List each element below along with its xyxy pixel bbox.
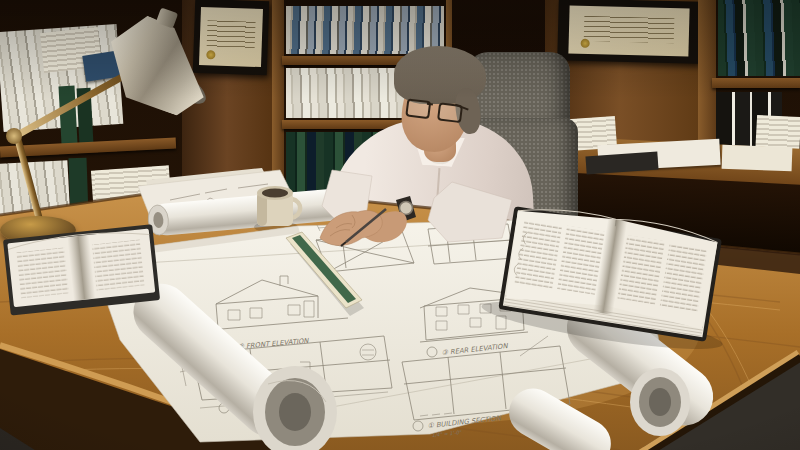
left-sleeve xyxy=(428,182,512,242)
desk-items-layer: ② FRONT ELEVATION ① FLOOR PLAN ③ REAR EL… xyxy=(0,0,800,450)
office-photo: ② FRONT ELEVATION ① FLOOR PLAN ③ REAR EL… xyxy=(0,0,800,450)
open-book-left xyxy=(3,224,160,315)
